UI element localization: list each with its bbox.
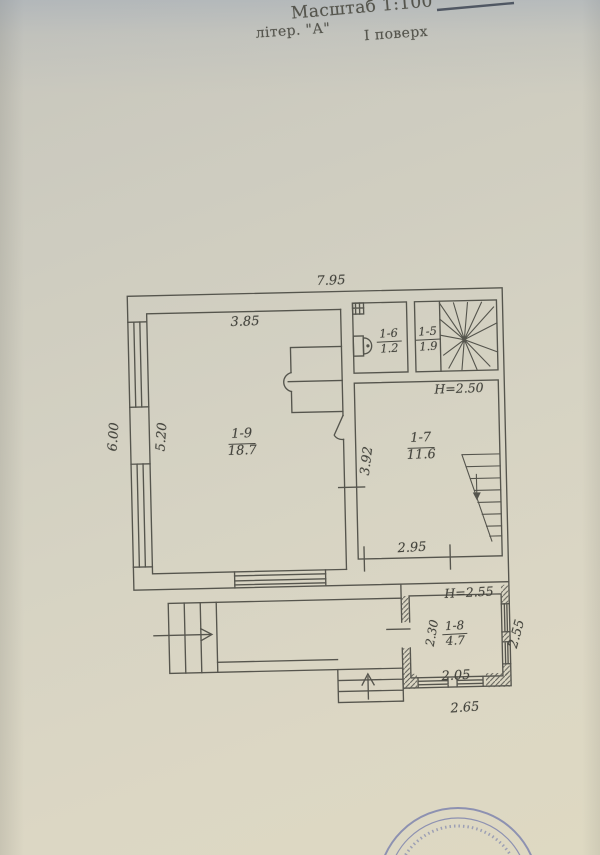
document-photo: Масштаб 1:100 літер. "А" І поверх 7.95 3… (0, 0, 600, 855)
dim-room-1-8-width: 2.05 (441, 669, 471, 683)
room-label-1-9: 1-9 18.7 (227, 427, 257, 459)
vent-icon (352, 303, 363, 314)
toilet-icon (353, 336, 372, 356)
bottom-window (235, 570, 326, 588)
room-label-1-7: 1-7 11.6 (406, 431, 436, 463)
room-label-1-6: 1-6 1.2 (376, 327, 402, 356)
left-windows (128, 322, 153, 567)
room-label-1-8: 1-8 4.7 (442, 619, 469, 649)
porch (168, 598, 403, 673)
room-label-1-5: 1-5 1.9 (415, 325, 441, 354)
floor-plan-drawing (0, 0, 600, 855)
entrance-arrow-up (362, 674, 375, 699)
main-outline (127, 288, 509, 590)
room-1-7-id: 1-7 (407, 431, 434, 448)
closet-niche (283, 346, 343, 412)
room-1-9-area: 18.7 (228, 443, 257, 459)
room-1-7-area: 11.6 (407, 447, 436, 463)
room-1-6-area: 1.2 (380, 342, 399, 356)
room-1-5-area: 1.9 (419, 340, 438, 354)
entrance-arrow-left (154, 628, 212, 641)
dim-room-1-9-width: 3.85 (230, 315, 259, 329)
dim-side-outer-height: 6.00 (107, 422, 122, 452)
header-underline (437, 3, 514, 10)
round-stamp (378, 808, 538, 855)
height-room-1-7: H=2.50 (434, 382, 484, 396)
height-room-1-8: H=2.55 (444, 585, 494, 600)
ladder-staircase (462, 454, 502, 542)
dim-room-1-7-height: 3.92 (359, 446, 375, 476)
dim-annex-bottom-width: 2.65 (450, 701, 480, 716)
room-1-8-area: 4.7 (446, 634, 466, 648)
dim-room-1-9-height: 5.20 (155, 422, 170, 452)
dim-overall-width: 7.95 (316, 274, 345, 288)
spiral-staircase (439, 302, 498, 370)
porch-steps (338, 668, 404, 702)
dim-room-1-7-width: 2.95 (397, 541, 427, 555)
room-1-9-id: 1-9 (228, 427, 255, 444)
